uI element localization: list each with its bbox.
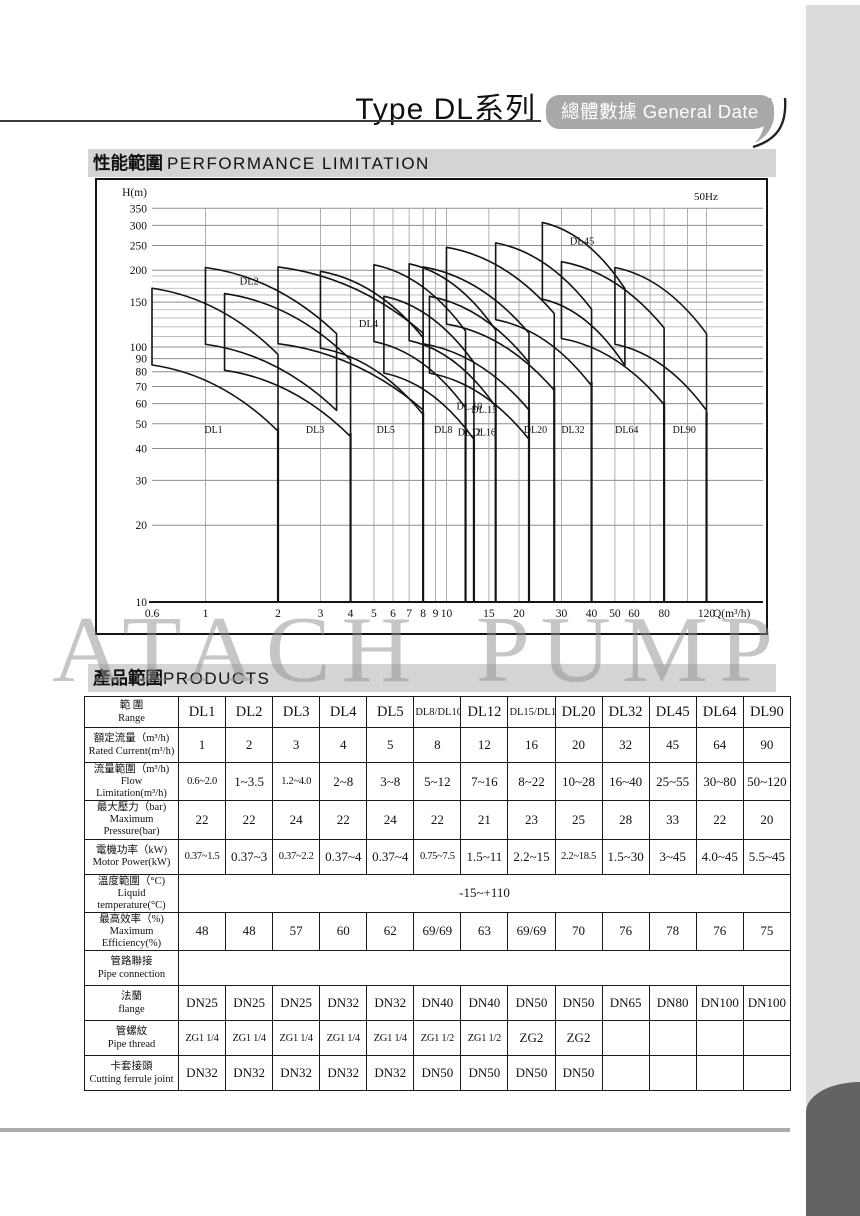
spec-cell: ZG1 1/4 (367, 1021, 414, 1056)
spec-cell: 5~12 (414, 763, 461, 801)
spec-cell: DN100 (696, 986, 743, 1021)
spec-cell: 28 (602, 801, 649, 839)
y-tick-label: 350 (130, 203, 148, 215)
x-tick-label: 2 (275, 608, 281, 620)
y-tick-label: 150 (130, 297, 148, 309)
spec-cell: 48 (179, 912, 226, 950)
spec-cell: 16~40 (602, 763, 649, 801)
y-tick-label: 300 (130, 220, 148, 232)
pump-envelope-DL90 (615, 268, 707, 411)
spec-cell: 21 (461, 801, 508, 839)
spec-cell: ZG1 1/4 (273, 1021, 320, 1056)
y-tick-label: 20 (136, 520, 148, 532)
spec-cell: 1 (179, 728, 226, 763)
spec-cell: 0.37~4 (320, 839, 367, 874)
spec-cell: 1.5~30 (602, 839, 649, 874)
spec-row-label: 電機功率（kW)Motor Power(kW) (85, 839, 179, 874)
section-products-zh: 產品範圍 (93, 668, 163, 688)
spec-cell: DN50 (461, 1056, 508, 1091)
spec-row-label: 最高效率（%)Maximum Efficiency(%) (85, 912, 179, 950)
model-header-DL4: DL4 (320, 697, 367, 728)
x-tick-label: 5 (371, 608, 377, 620)
section-performance-en: PERFORMANCE LIMITATION (167, 154, 430, 173)
products-header-row: 範 圍RangeDL1DL2DL3DL4DL5DL8/DL10DL12DL15/… (85, 697, 791, 728)
section-performance-zh: 性能範圍 (93, 153, 163, 173)
model-header-DL90: DL90 (743, 697, 790, 728)
model-header-DL5: DL5 (367, 697, 414, 728)
y-tick-label: 50 (136, 419, 148, 431)
spec-cell: 12 (461, 728, 508, 763)
spec-cell: 20 (743, 801, 790, 839)
spec-cell: 78 (649, 912, 696, 950)
spec-row-5: 最高效率（%)Maximum Efficiency(%)484857606269… (85, 912, 791, 950)
spec-cell: 0.75~7.5 (414, 839, 461, 874)
spec-cell: 32 (602, 728, 649, 763)
y-tick-label: 100 (130, 342, 148, 354)
spec-cell: 45 (649, 728, 696, 763)
spec-cell: 1.2~4.0 (273, 763, 320, 801)
x-tick-label: 10 (441, 608, 453, 620)
spec-cell: ZG1 1/4 (179, 1021, 226, 1056)
y-tick-label: 40 (136, 443, 148, 455)
spec-cell: 57 (273, 912, 320, 950)
spec-cell: 5.5~45 (743, 839, 790, 874)
general-data-tab-label: 總體數據 General Date (561, 101, 759, 122)
right-edge-strip-dark-corner (806, 1082, 860, 1216)
spec-cell: DN25 (226, 986, 273, 1021)
model-header-DL15-DL16: DL15/DL16 (508, 697, 555, 728)
section-performance-header: 性能範圍 PERFORMANCE LIMITATION (88, 149, 776, 177)
range-header-cell: 範 圍Range (85, 697, 179, 728)
spec-cell: 25 (555, 801, 602, 839)
curve-label-DL4: DL4 (359, 319, 379, 330)
model-header-DL12: DL12 (461, 697, 508, 728)
spec-cell: DN32 (179, 1056, 226, 1091)
bottom-rule (0, 1128, 790, 1132)
region-label-DL3: DL3 (306, 425, 324, 436)
spec-cell: 22 (414, 801, 461, 839)
spec-cell: DN50 (555, 986, 602, 1021)
spec-cell: 63 (461, 912, 508, 950)
spec-cell (743, 1021, 790, 1056)
spec-cell: 24 (273, 801, 320, 839)
spec-row-label: 管路聯接Pipe connection (85, 951, 179, 986)
spec-cell (696, 1056, 743, 1091)
spec-cell: DN50 (508, 986, 555, 1021)
spec-cell: 90 (743, 728, 790, 763)
spec-cell: 25~55 (649, 763, 696, 801)
spec-row-label: 額定流量（m³/h)Rated Current(m³/h) (85, 728, 179, 763)
spec-cell: 23 (508, 801, 555, 839)
general-data-tab: 總體數據 General Date (546, 95, 774, 129)
spec-cell: 22 (320, 801, 367, 839)
spec-cell: 7~16 (461, 763, 508, 801)
spec-row-8: 管螺紋Pipe threadZG1 1/4ZG1 1/4ZG1 1/4ZG1 1… (85, 1021, 791, 1056)
spec-cell: 60 (320, 912, 367, 950)
spec-row-label: 流量範圍（m³/h)Flow Limitation(m³/h) (85, 763, 179, 801)
spec-cell: DN32 (320, 986, 367, 1021)
spec-span-cell (179, 951, 791, 986)
model-header-DL45: DL45 (649, 697, 696, 728)
spec-cell: DN25 (179, 986, 226, 1021)
spec-cell: 2.2~18.5 (555, 839, 602, 874)
spec-cell: 1~3.5 (226, 763, 273, 801)
right-edge-strip (806, 5, 860, 1216)
spec-cell: 33 (649, 801, 696, 839)
spec-row-3: 電機功率（kW)Motor Power(kW)0.37~1.50.37~30.3… (85, 839, 791, 874)
spec-cell: 1.5~11 (461, 839, 508, 874)
y-tick-label: 200 (130, 265, 148, 277)
x-tick-label: 40 (586, 608, 598, 620)
region-label-DL8: DL8 (434, 425, 452, 436)
model-header-DL8-DL10: DL8/DL10 (414, 697, 461, 728)
x-tick-label: 50 (609, 608, 621, 620)
spec-cell (696, 1021, 743, 1056)
spec-cell: 4.0~45 (696, 839, 743, 874)
spec-cell: DN40 (461, 986, 508, 1021)
x-tick-label: 7 (406, 608, 412, 620)
x-tick-label: 9 (433, 608, 439, 620)
y-tick-label: 80 (136, 367, 148, 379)
spec-cell: ZG2 (555, 1021, 602, 1056)
spec-row-label: 法蘭flange (85, 986, 179, 1021)
x-tick-label: 20 (513, 608, 525, 620)
section-products-header: 產品範圍PRODUCTS (88, 664, 776, 692)
model-header-DL1: DL1 (179, 697, 226, 728)
spec-cell: 8~22 (508, 763, 555, 801)
x-tick-label: 80 (658, 608, 670, 620)
spec-span-cell: -15~+110 (179, 874, 791, 912)
x-tick-label: 0.6 (145, 608, 160, 620)
x-tick-label: 60 (628, 608, 640, 620)
region-label-DL5: DL5 (377, 425, 395, 436)
spec-cell: DN80 (649, 986, 696, 1021)
spec-cell: DN65 (602, 986, 649, 1021)
spec-row-4: 溫度範圍（°C)Liquid temperature(°C)-15~+110 (85, 874, 791, 912)
spec-cell: DN40 (414, 986, 461, 1021)
spec-cell: DN50 (555, 1056, 602, 1091)
y-tick-label: 30 (136, 475, 148, 487)
spec-cell: 30~80 (696, 763, 743, 801)
spec-cell (602, 1021, 649, 1056)
spec-cell: 0.37~3 (226, 839, 273, 874)
spec-cell: 2~8 (320, 763, 367, 801)
spec-cell: DN25 (273, 986, 320, 1021)
spec-cell: ZG1 1/2 (414, 1021, 461, 1056)
spec-cell (743, 1056, 790, 1091)
region-label-DL16: DL16 (473, 427, 496, 438)
spec-cell: 75 (743, 912, 790, 950)
y-tick-label: 70 (136, 382, 148, 394)
spec-cell: 2 (226, 728, 273, 763)
spec-cell: 62 (367, 912, 414, 950)
spec-cell: DN50 (414, 1056, 461, 1091)
spec-cell: ZG2 (508, 1021, 555, 1056)
y-tick-label: 60 (136, 399, 148, 411)
y-axis-label: H(m) (122, 187, 147, 199)
x-tick-label: 6 (390, 608, 396, 620)
spec-row-2: 最大壓力（bar)Maximum Pressure(bar)2222242224… (85, 801, 791, 839)
spec-cell: DN100 (743, 986, 790, 1021)
region-label-DL.15: DL.15 (471, 405, 497, 416)
spec-row-label: 管螺紋Pipe thread (85, 1021, 179, 1056)
spec-cell: 24 (367, 801, 414, 839)
region-label-DL90: DL90 (673, 425, 696, 436)
spec-cell: 0.37~4 (367, 839, 414, 874)
pump-envelope-DL3 (225, 294, 351, 437)
spec-cell: 0.37~1.5 (179, 839, 226, 874)
spec-cell: ZG1 1/2 (461, 1021, 508, 1056)
x-tick-label: 1 (203, 608, 209, 620)
spec-cell: 3 (273, 728, 320, 763)
spec-cell: 48 (226, 912, 273, 950)
model-header-DL20: DL20 (555, 697, 602, 728)
products-table: 範 圍RangeDL1DL2DL3DL4DL5DL8/DL10DL12DL15/… (84, 696, 791, 1091)
region-label-DL20: DL20 (524, 425, 547, 436)
products-table-head: 範 圍RangeDL1DL2DL3DL4DL5DL8/DL10DL12DL15/… (85, 697, 791, 728)
spec-row-label: 卡套接頭Cutting ferrule joint (85, 1056, 179, 1091)
spec-cell: 69/69 (414, 912, 461, 950)
performance-chart: 3503002502001501009080706050403020100.61… (97, 180, 766, 633)
spec-cell: DN32 (320, 1056, 367, 1091)
spec-row-label: 最大壓力（bar)Maximum Pressure(bar) (85, 801, 179, 839)
spec-row-0: 額定流量（m³/h)Rated Current(m³/h)12345812162… (85, 728, 791, 763)
spec-cell: ZG1 1/4 (226, 1021, 273, 1056)
spec-cell: 20 (555, 728, 602, 763)
spec-cell: 10~28 (555, 763, 602, 801)
spec-cell: 22 (226, 801, 273, 839)
spec-cell: 4 (320, 728, 367, 763)
tab-tail-swoosh-icon (747, 95, 789, 151)
pump-envelope-DL64 (561, 262, 664, 405)
y-tick-label: 250 (130, 241, 148, 253)
spec-cell: 70 (555, 912, 602, 950)
spec-cell: 3~8 (367, 763, 414, 801)
spec-cell: 0.37~2.2 (273, 839, 320, 874)
model-header-DL32: DL32 (602, 697, 649, 728)
region-label-DL64: DL64 (615, 425, 638, 436)
spec-row-7: 法蘭flangeDN25DN25DN25DN32DN32DN40DN40DN50… (85, 986, 791, 1021)
performance-chart-frame: 3503002502001501009080706050403020100.61… (95, 178, 768, 635)
spec-cell (649, 1056, 696, 1091)
spec-cell: 5 (367, 728, 414, 763)
region-label-DL1: DL1 (204, 425, 222, 436)
region-label-DL32: DL32 (561, 425, 584, 436)
spec-row-1: 流量範圍（m³/h)Flow Limitation(m³/h)0.6~2.01~… (85, 763, 791, 801)
spec-cell: 8 (414, 728, 461, 763)
model-header-DL64: DL64 (696, 697, 743, 728)
spec-row-6: 管路聯接Pipe connection (85, 951, 791, 986)
model-header-DL2: DL2 (226, 697, 273, 728)
products-table-body: 額定流量（m³/h)Rated Current(m³/h)12345812162… (85, 728, 791, 1091)
spec-cell: 69/69 (508, 912, 555, 950)
spec-cell: 50~120 (743, 763, 790, 801)
x-tick-label: 30 (556, 608, 568, 620)
x-tick-label: 8 (420, 608, 426, 620)
spec-cell: DN32 (273, 1056, 320, 1091)
x-axis-label: Q(m³/h) (713, 608, 750, 620)
spec-cell: DN32 (367, 1056, 414, 1091)
spec-cell: 16 (508, 728, 555, 763)
spec-cell: 76 (696, 912, 743, 950)
spec-cell: 0.6~2.0 (179, 763, 226, 801)
spec-row-9: 卡套接頭Cutting ferrule jointDN32DN32DN32DN3… (85, 1056, 791, 1091)
spec-cell (649, 1021, 696, 1056)
spec-cell: 22 (179, 801, 226, 839)
title-rule (0, 120, 541, 122)
spec-cell: DN32 (367, 986, 414, 1021)
spec-cell: DN32 (226, 1056, 273, 1091)
spec-cell: 76 (602, 912, 649, 950)
y-tick-label: 90 (136, 354, 148, 366)
spec-cell: ZG1 1/4 (320, 1021, 367, 1056)
section-products-en: PRODUCTS (163, 669, 270, 688)
model-header-DL3: DL3 (273, 697, 320, 728)
x-tick-label: 3 (318, 608, 324, 620)
curve-label-DL2: DL2 (240, 276, 259, 287)
catalog-page: Type DL系列 總體數據 General Date 性能範圍 PERFORM… (0, 0, 860, 1216)
spec-cell: 22 (696, 801, 743, 839)
curve-label-DL45: DL45 (570, 237, 595, 248)
frequency-label: 50Hz (694, 191, 718, 203)
spec-row-label: 溫度範圍（°C)Liquid temperature(°C) (85, 874, 179, 912)
x-tick-label: 4 (348, 608, 354, 620)
spec-cell: DN50 (508, 1056, 555, 1091)
spec-cell (602, 1056, 649, 1091)
spec-cell: 64 (696, 728, 743, 763)
spec-cell: 2.2~15 (508, 839, 555, 874)
spec-cell: 3~45 (649, 839, 696, 874)
x-tick-label: 15 (483, 608, 495, 620)
